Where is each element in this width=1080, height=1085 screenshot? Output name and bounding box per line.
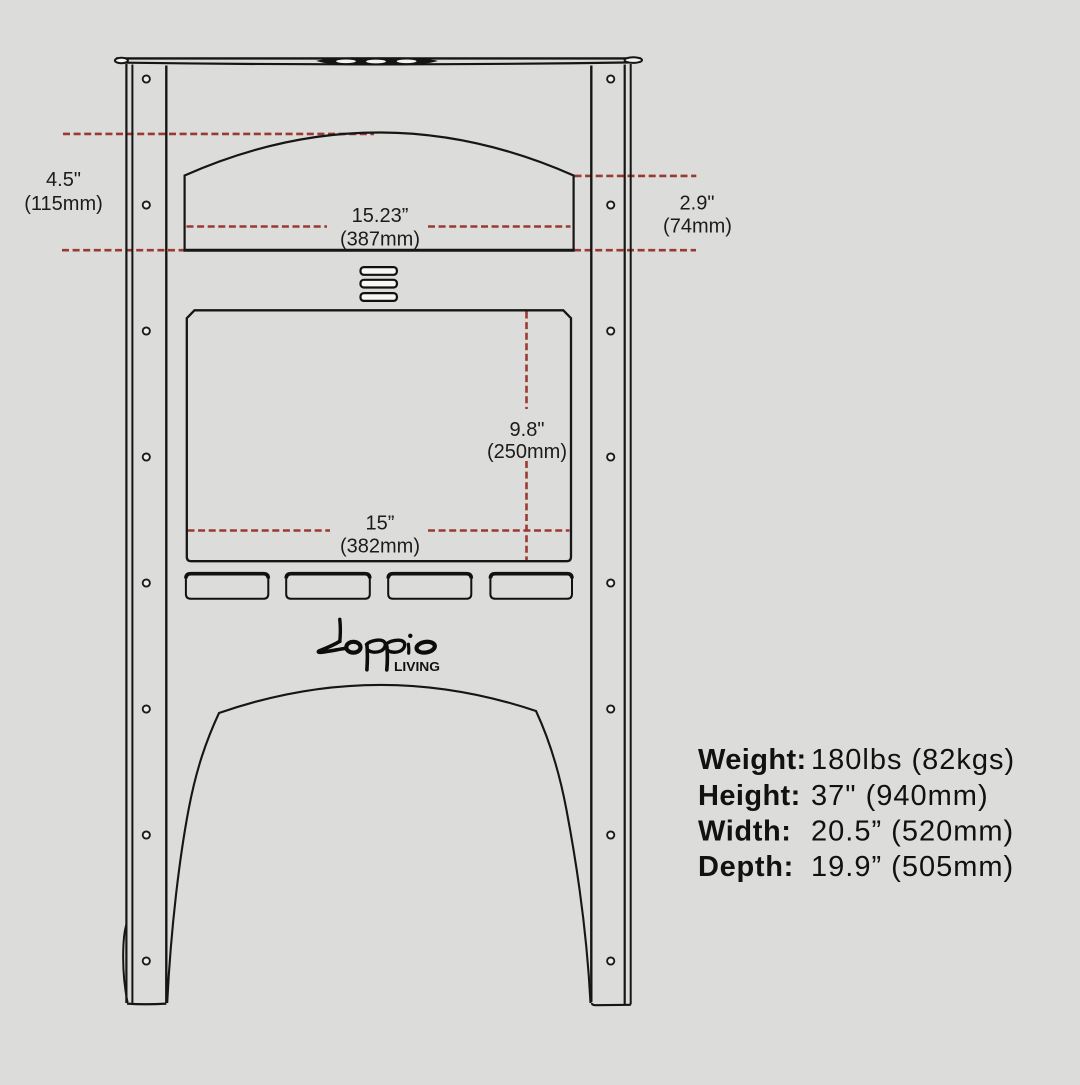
svg-text:Width:: Width: bbox=[698, 816, 792, 848]
svg-text:4.5": 4.5" bbox=[46, 169, 81, 191]
svg-text:(250mm): (250mm) bbox=[487, 441, 567, 463]
svg-text:15.23”: 15.23” bbox=[352, 205, 409, 227]
svg-text:Height:: Height: bbox=[698, 780, 801, 812]
svg-text:37" (940mm): 37" (940mm) bbox=[811, 780, 989, 812]
svg-text:(115mm): (115mm) bbox=[24, 193, 103, 215]
svg-text:9.8": 9.8" bbox=[510, 419, 545, 441]
svg-text:(387mm): (387mm) bbox=[340, 229, 420, 251]
svg-text:LIVING: LIVING bbox=[394, 659, 440, 674]
svg-text:Depth:: Depth: bbox=[698, 851, 794, 883]
svg-text:19.9” (505mm): 19.9” (505mm) bbox=[811, 851, 1014, 883]
svg-text:15”: 15” bbox=[366, 513, 395, 535]
svg-text:2.9": 2.9" bbox=[680, 193, 715, 215]
svg-text:Weight:: Weight: bbox=[698, 744, 807, 776]
svg-text:20.5” (520mm): 20.5” (520mm) bbox=[811, 816, 1014, 848]
svg-text:180lbs (82kgs): 180lbs (82kgs) bbox=[811, 744, 1015, 776]
svg-text:(382mm): (382mm) bbox=[340, 536, 420, 558]
svg-text:(74mm): (74mm) bbox=[663, 216, 732, 238]
